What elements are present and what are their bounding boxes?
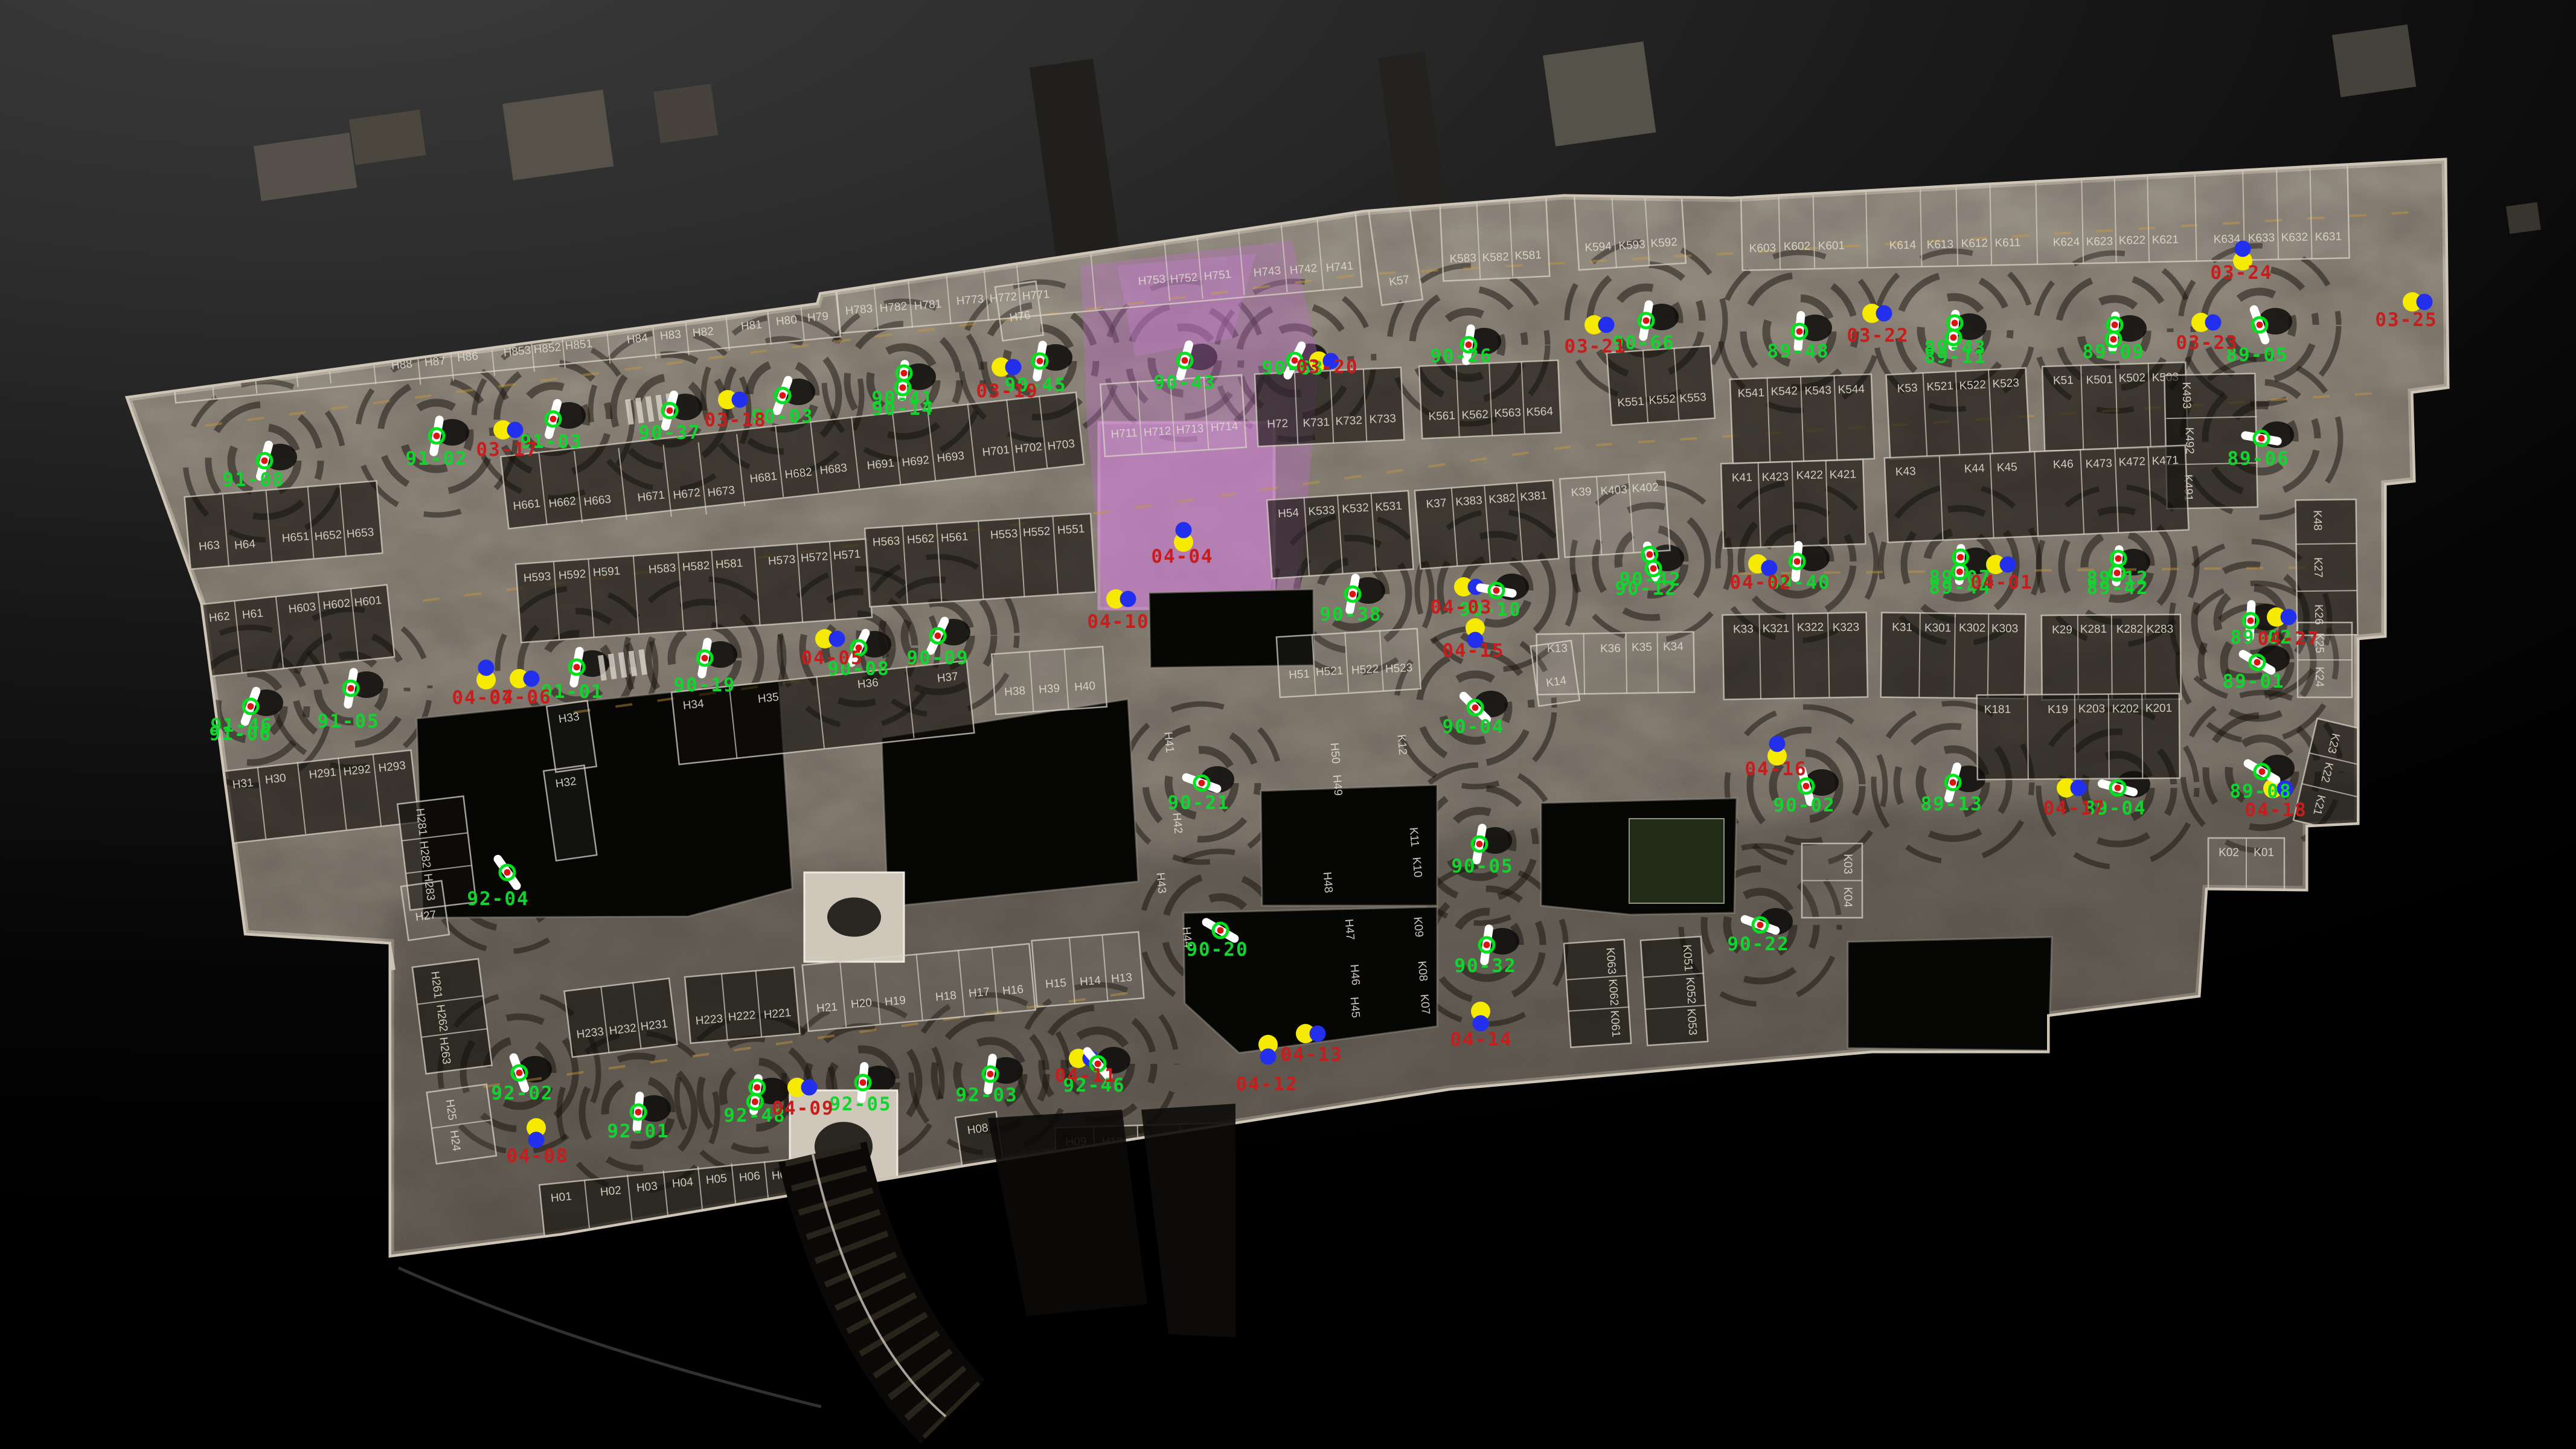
stall-number-label: K631 xyxy=(2315,231,2342,244)
stall-number-label: K051 xyxy=(1680,944,1695,972)
stall-number-label: H04 xyxy=(671,1176,694,1190)
stall-number-label: K592 xyxy=(1650,236,1678,251)
station-label: 90-20 xyxy=(1186,939,1248,961)
station-label: 90-43 xyxy=(1153,372,1216,394)
stall-number-label: H551 xyxy=(1057,523,1085,537)
station-label: 89-09 xyxy=(2082,341,2144,363)
stall-number-label: K613 xyxy=(1926,238,1953,252)
point-cloud-debris xyxy=(254,133,357,201)
station-label: 90-12 xyxy=(1615,578,1677,600)
station-label: 89-48 xyxy=(1767,341,1829,362)
stall-number-label: K531 xyxy=(1375,500,1403,514)
sphere-target-marker[interactable] xyxy=(493,420,524,440)
point-cloud-debris xyxy=(653,84,718,144)
stall-number-label: H84 xyxy=(626,331,649,346)
stall-number-label: K553 xyxy=(1679,391,1707,406)
parking-stall-row: K43K44K45K46K473K472K471 xyxy=(1885,446,2189,543)
stall-number-label: K382 xyxy=(1488,491,1516,506)
parking-stall-row: H27 xyxy=(401,881,449,941)
target-label: 04-03 xyxy=(1430,597,1492,618)
stall-number-label: H34 xyxy=(682,697,705,712)
floor-plan-scene: H91H90H893H892H891H88H87H86H853H852H851H… xyxy=(0,0,2576,1449)
stall-number-label: K583 xyxy=(1449,252,1476,266)
target-label: 04-12 xyxy=(1235,1073,1298,1095)
stall-number-label: K41 xyxy=(1732,472,1752,485)
parking-stall-row: K29K281K282K283 xyxy=(2042,615,2181,700)
stall-number-label: H31 xyxy=(232,776,254,792)
parking-stall-row: H25H24 xyxy=(427,1084,496,1164)
parking-stall-row: H54K533K532K531 xyxy=(1267,491,1413,578)
crosswalk xyxy=(345,945,396,978)
stall-number-label: K282 xyxy=(2116,623,2144,636)
stall-number-label: H81 xyxy=(740,318,763,333)
stall-number-label: K37 xyxy=(1426,497,1447,511)
sphere-target-marker[interactable] xyxy=(476,660,496,690)
stall-number-label: K564 xyxy=(1526,405,1554,419)
sphere-target-marker[interactable] xyxy=(1471,1002,1490,1032)
stall-number-label: K612 xyxy=(1961,237,1988,251)
stall-number-label: K07 xyxy=(1418,994,1432,1016)
target-label: 04-17 xyxy=(2043,798,2105,819)
parking-stall-row: K181K19K203K202K201 xyxy=(1977,694,2180,780)
stall-number-label: K35 xyxy=(1632,641,1652,654)
void-area xyxy=(1848,937,2052,1051)
stall-number-label: K403 xyxy=(1600,484,1628,498)
station-label: 90-14 xyxy=(871,398,934,420)
target-label: 03-23 xyxy=(2176,332,2238,354)
target-label: 04-05 xyxy=(801,647,863,669)
point-cloud-debris xyxy=(349,110,426,165)
stall-number-label: K46 xyxy=(2052,458,2074,471)
stall-number-label: K29 xyxy=(2052,624,2072,636)
stall-number-label: K423 xyxy=(1761,470,1789,484)
parking-stall-row: K41K423K422K421 xyxy=(1721,459,1865,548)
stall-number-label: H711 xyxy=(1110,427,1138,441)
stall-number-label: K53 xyxy=(1897,382,1918,395)
stall-number-label: H02 xyxy=(600,1184,622,1198)
stall-number-label: H713 xyxy=(1176,423,1204,437)
station-label: 91-05 xyxy=(317,711,379,732)
stall-number-label: K062 xyxy=(1606,979,1621,1006)
stall-number-label: H593 xyxy=(523,570,551,584)
station-label: 90-21 xyxy=(1167,792,1229,814)
target-label: 04-09 xyxy=(772,1098,834,1119)
stall-number-label: K544 xyxy=(1837,383,1865,397)
parking-stall-row: K594K593K592 xyxy=(1573,173,1685,270)
stall-number-label: K203 xyxy=(2078,703,2106,715)
stall-number-label: H39 xyxy=(1039,682,1060,696)
point-cloud-debris xyxy=(2332,24,2416,97)
stall-number-label: H51 xyxy=(1289,668,1310,682)
station-label: 92-04 xyxy=(467,888,529,910)
stall-number-label: K551 xyxy=(1617,395,1645,410)
parking-stall-row: H33 xyxy=(546,701,597,772)
parking-stall-row: H261H262H263 xyxy=(412,959,492,1073)
station-label: 90-04 xyxy=(1442,716,1504,738)
stall-number-label: H573 xyxy=(767,553,796,568)
stall-number-label: H03 xyxy=(636,1180,658,1194)
stall-number-label: H223 xyxy=(695,1012,723,1028)
sphere-target-marker[interactable] xyxy=(1106,589,1136,609)
stall-number-label: H14 xyxy=(1079,974,1101,989)
stall-number-label: K45 xyxy=(1996,461,2017,474)
sphere-target-marker[interactable] xyxy=(2191,313,2222,332)
station-label: 90-37 xyxy=(638,422,700,444)
target-label: 03-19 xyxy=(976,380,1038,402)
target-label: 04-18 xyxy=(2244,799,2307,821)
sphere-target-marker[interactable] xyxy=(787,1078,818,1097)
stall-number-label: K731 xyxy=(1302,416,1330,430)
stall-number-label: K621 xyxy=(2151,234,2179,247)
stall-number-label: K11 xyxy=(1407,827,1421,847)
stall-number-label: K301 xyxy=(1924,622,1952,635)
parking-stall-row: K541K542K543K544 xyxy=(1730,374,1874,464)
stall-number-label: K533 xyxy=(1308,504,1336,519)
parking-stall-row: K561K562K563K564 xyxy=(1419,360,1561,439)
point-cloud-debris xyxy=(1030,59,1120,257)
stall-number-label: H743 xyxy=(1253,264,1281,280)
stall-number-label: H79 xyxy=(807,310,829,324)
target-label: 03-18 xyxy=(704,409,766,431)
stall-number-label: K24 xyxy=(2313,667,2325,687)
stall-number-label: H892 xyxy=(298,356,326,371)
point-cloud-viewport[interactable]: H91H90H893H892H891H88H87H86H853H852H851H… xyxy=(0,0,2576,1449)
stall-number-label: K281 xyxy=(2080,623,2107,636)
stall-number-label: K283 xyxy=(2147,623,2174,636)
sphere-target-marker[interactable] xyxy=(1258,1035,1278,1065)
station-label: 90-09 xyxy=(906,647,969,669)
stall-number-label: K523 xyxy=(1992,377,2019,391)
stall-number-label: K473 xyxy=(2085,457,2112,471)
stall-number-label: K04 xyxy=(1841,887,1854,907)
stall-number-label: H30 xyxy=(264,772,287,787)
stall-number-label: K561 xyxy=(1428,409,1455,423)
stall-number-label: K581 xyxy=(1514,249,1542,263)
stall-number-label: K383 xyxy=(1455,494,1483,508)
parking-stall-row: K39K403K402 xyxy=(1560,472,1670,557)
point-cloud-debris xyxy=(1543,42,1656,147)
stall-number-label: K063 xyxy=(1604,947,1618,975)
target-label: 03-17 xyxy=(476,439,538,461)
stall-number-label: H17 xyxy=(968,985,990,1000)
stall-number-label: K181 xyxy=(1984,703,2011,716)
station-label: 89-42 xyxy=(2086,577,2148,599)
stall-number-label: K27 xyxy=(2312,557,2324,578)
stall-number-label: H852 xyxy=(533,341,562,356)
station-label: 90-05 xyxy=(1451,856,1513,877)
stairwell-bright-room xyxy=(804,872,904,962)
stall-number-label: K532 xyxy=(1342,502,1370,516)
target-label: 03-20 xyxy=(1296,356,1358,378)
stall-number-label: K502 xyxy=(2118,371,2145,385)
stall-number-label: H63 xyxy=(198,539,220,554)
stall-number-label: K302 xyxy=(1959,622,1986,635)
stall-number-label: K12 xyxy=(1395,734,1409,756)
sphere-target-marker[interactable] xyxy=(718,390,748,409)
stall-number-label: K061 xyxy=(1608,1010,1623,1038)
stall-number-label: H21 xyxy=(816,1000,838,1015)
stall-number-label: K633 xyxy=(2248,232,2275,245)
station-label: 92-01 xyxy=(607,1121,669,1142)
station-label: 90-38 xyxy=(1319,604,1382,625)
stall-number-label: K19 xyxy=(2048,703,2068,716)
stall-number-label: K471 xyxy=(2151,454,2179,468)
sphere-target-marker[interactable] xyxy=(1296,1024,1326,1043)
stall-number-label: K521 xyxy=(1926,380,1953,394)
stall-number-label: K582 xyxy=(1482,251,1509,264)
parking-stall-row: H51H521H522H523 xyxy=(1277,629,1421,697)
stall-number-label: H714 xyxy=(1210,420,1238,435)
target-label: 04-14 xyxy=(1450,1029,1512,1051)
stall-number-label: K43 xyxy=(1895,465,1916,478)
stall-number-label: K052 xyxy=(1684,977,1698,1005)
stall-number-label: K501 xyxy=(2086,373,2113,386)
stall-number-label: H61 xyxy=(242,607,264,622)
stall-number-label: H43 xyxy=(1153,872,1168,894)
parking-stall-row: K13K36K35K34 xyxy=(1537,632,1695,694)
stall-number-label: K562 xyxy=(1461,408,1488,422)
stall-number-label: K323 xyxy=(1833,621,1860,635)
stall-number-label: K622 xyxy=(2118,234,2145,248)
parking-stall-row: H15H14H13 xyxy=(1032,932,1144,1006)
parking-stall-row: K03K04 xyxy=(1802,843,1862,918)
parking-stall-row: H563H562H561H553H552H551 xyxy=(865,514,1095,607)
stall-number-label: K602 xyxy=(1783,240,1810,254)
stall-number-label: K552 xyxy=(1648,393,1676,408)
stall-number-label: H592 xyxy=(558,568,586,582)
station-label: 91-06 xyxy=(209,723,271,745)
stall-number-label: K01 xyxy=(2254,846,2274,859)
stall-number-label: H18 xyxy=(935,989,957,1003)
stall-number-label: K563 xyxy=(1494,406,1521,420)
parking-stall-row: H76 xyxy=(995,281,1043,341)
stall-number-label: K322 xyxy=(1797,621,1824,635)
parking-stall-row: K53K521K522K523 xyxy=(1886,368,2030,459)
stall-number-label: H38 xyxy=(1004,685,1026,699)
stall-number-label: H571 xyxy=(833,548,861,562)
target-label: 04-13 xyxy=(1280,1044,1342,1066)
stall-number-label: K13 xyxy=(1547,642,1568,656)
stall-number-label: H751 xyxy=(1203,268,1232,283)
stall-number-label: H523 xyxy=(1385,662,1413,676)
stall-number-label: H221 xyxy=(763,1006,792,1022)
target-label: 03-25 xyxy=(2375,309,2437,331)
stall-number-label: H83 xyxy=(659,328,682,342)
station-label: 89-06 xyxy=(2227,448,2289,470)
stall-number-label: K601 xyxy=(1818,240,1845,253)
station-label: 91-02 xyxy=(405,448,467,470)
target-label: 03-22 xyxy=(1847,325,1909,347)
stall-number-label: H35 xyxy=(757,691,780,706)
stall-number-label: H46 xyxy=(1348,964,1362,985)
stall-number-label: K603 xyxy=(1749,242,1776,255)
stall-number-label: K381 xyxy=(1520,489,1548,504)
stall-number-label: H553 xyxy=(990,528,1018,542)
stall-number-label: H562 xyxy=(906,533,935,547)
parking-stall-row: H63H64H651H652H653 xyxy=(185,481,383,569)
stall-number-label: K594 xyxy=(1584,240,1612,255)
target-label: 04-10 xyxy=(1087,611,1149,633)
stall-number-label: K623 xyxy=(2086,235,2113,249)
sphere-target-marker[interactable] xyxy=(1862,304,1892,323)
stall-number-label: H72 xyxy=(1267,417,1289,431)
station-label: 92-03 xyxy=(955,1084,1017,1106)
station-label: 92-02 xyxy=(491,1083,553,1104)
sphere-target-marker[interactable] xyxy=(815,629,845,648)
stall-number-label: K541 xyxy=(1737,386,1764,400)
stall-number-label: K593 xyxy=(1618,238,1646,253)
stall-number-label: K09 xyxy=(1411,916,1426,938)
stall-number-label: H37 xyxy=(937,670,959,685)
stall-number-label: H591 xyxy=(592,565,621,579)
station-label: 92-05 xyxy=(829,1093,891,1115)
stall-number-label: H781 xyxy=(914,298,942,313)
stall-number-label: H50 xyxy=(1328,742,1342,764)
stall-number-label: H752 xyxy=(1170,271,1198,286)
stall-number-label: K321 xyxy=(1763,622,1790,636)
parking-stall-row: H72K731K732K733 xyxy=(1255,368,1404,447)
green-room-patch xyxy=(1629,819,1724,903)
target-label: 04-02 xyxy=(1729,572,1792,593)
stall-number-label: H572 xyxy=(800,550,828,565)
target-label: 04-08 xyxy=(506,1145,568,1167)
stall-number-label: H653 xyxy=(346,526,374,541)
station-label: 90-22 xyxy=(1727,933,1789,955)
station-label: 90-02 xyxy=(1773,795,1835,816)
target-label: 04-27 xyxy=(2257,628,2319,650)
stall-number-label: H80 xyxy=(775,313,798,328)
stall-number-label: H41 xyxy=(1161,731,1176,753)
stall-number-label: H20 xyxy=(850,996,873,1011)
parking-stall-row: K551K552K553 xyxy=(1607,346,1715,425)
stall-number-label: K31 xyxy=(1892,621,1912,634)
stall-number-label: K614 xyxy=(1889,239,1916,252)
stall-number-label: H48 xyxy=(1321,871,1335,893)
stall-number-label: H753 xyxy=(1138,273,1166,288)
sphere-target-marker[interactable] xyxy=(2267,607,2297,627)
stall-number-label: K202 xyxy=(2112,703,2139,715)
stall-number-label: K053 xyxy=(1685,1008,1699,1036)
stall-number-label: H563 xyxy=(872,535,900,549)
stall-number-label: K542 xyxy=(1770,385,1798,398)
stall-number-label: K03 xyxy=(1841,854,1854,874)
parking-stall-row: K31K301K302K303 xyxy=(1881,613,2026,699)
stall-number-label: H40 xyxy=(1074,680,1096,694)
stall-number-label: H05 xyxy=(705,1172,728,1186)
parking-stall-row: H223H222H221 xyxy=(685,967,799,1043)
target-label: 04-11 xyxy=(1054,1065,1117,1087)
stall-number-label: H45 xyxy=(1348,996,1362,1018)
stall-number-label: K08 xyxy=(1415,961,1430,982)
stall-number-label: H82 xyxy=(692,325,714,339)
station-label: 89-01 xyxy=(2222,671,2284,693)
stall-number-label: H741 xyxy=(1325,260,1354,275)
sphere-target-marker[interactable] xyxy=(1584,315,1615,334)
target-label: 03-21 xyxy=(1564,336,1626,357)
station-label: 90-19 xyxy=(673,674,735,696)
stall-number-label: H01 xyxy=(550,1190,572,1204)
sphere-target-marker[interactable] xyxy=(2057,778,2087,798)
stall-number-label: H15 xyxy=(1045,977,1066,991)
point-cloud-debris xyxy=(2506,202,2541,234)
target-label: 04-07 xyxy=(452,687,514,709)
stall-number-label: H782 xyxy=(879,300,908,315)
stall-number-label: H742 xyxy=(1289,262,1318,277)
stall-number-label: H712 xyxy=(1143,425,1171,440)
station-label: 89-13 xyxy=(1920,793,1982,815)
stall-number-label: H62 xyxy=(208,610,231,625)
parking-stall-row: H233H232H231 xyxy=(565,978,678,1057)
stall-number-label: K421 xyxy=(1829,468,1856,481)
stall-number-label: H13 xyxy=(1110,971,1132,986)
station-label: 90-26 xyxy=(1430,345,1492,367)
station-label: 90-32 xyxy=(1454,955,1516,977)
stall-number-label: K51 xyxy=(2053,374,2074,388)
parking-stall-row: K37K383K382K381 xyxy=(1415,481,1559,569)
target-label: 03-24 xyxy=(2210,262,2272,284)
stall-number-label: H42 xyxy=(1170,812,1184,834)
stall-number-label: H652 xyxy=(314,528,342,543)
parking-stall-row: H38H39H40 xyxy=(992,647,1107,714)
stall-number-label: K48 xyxy=(2311,510,2324,531)
stall-number-label: K733 xyxy=(1369,412,1396,426)
stall-number-label: H581 xyxy=(715,557,743,571)
stall-number-label: K33 xyxy=(1733,623,1754,636)
stall-number-label: K402 xyxy=(1632,481,1659,496)
stall-number-label: H47 xyxy=(1342,918,1357,940)
stall-number-label: H64 xyxy=(234,538,256,552)
stall-number-label: H522 xyxy=(1351,663,1379,677)
stall-number-label: H851 xyxy=(565,337,593,353)
stall-number-label: H552 xyxy=(1022,525,1051,540)
sphere-target-marker[interactable] xyxy=(527,1118,546,1148)
stall-number-label: H222 xyxy=(728,1009,756,1024)
target-label: 04-16 xyxy=(1745,758,1807,780)
parking-stall-row: K051K052K053 xyxy=(1641,936,1708,1045)
stall-number-label: K201 xyxy=(2145,702,2173,715)
stall-number-label: K44 xyxy=(1964,462,1985,475)
point-cloud-debris xyxy=(502,90,614,181)
point-cloud-debris xyxy=(1378,51,1447,214)
stall-number-label: H773 xyxy=(956,293,984,308)
stall-number-label: K632 xyxy=(2281,231,2308,245)
stall-number-label: H521 xyxy=(1315,665,1344,679)
stall-number-label: K732 xyxy=(1335,414,1362,428)
stall-number-label: K36 xyxy=(1600,642,1621,656)
stall-number-label: K34 xyxy=(1663,641,1684,654)
target-label: 04-01 xyxy=(1970,572,2033,593)
target-label: 04-15 xyxy=(1442,640,1504,662)
parking-stall-row: K603K602K601K614K613K612K611K624K623K622… xyxy=(1740,158,2349,270)
stall-number-label: H91 xyxy=(183,372,205,386)
station-label: 89-11 xyxy=(1924,346,1986,368)
stall-number-label: H06 xyxy=(739,1169,761,1184)
sphere-target-marker[interactable] xyxy=(510,669,540,688)
station-label: 91-08 xyxy=(222,469,284,491)
stall-number-label: K522 xyxy=(1959,379,1986,392)
parking-stall-row: K48K27K26 xyxy=(2296,499,2358,635)
stall-number-label: H651 xyxy=(281,530,310,545)
stall-number-label: K624 xyxy=(2052,236,2080,249)
stall-number-label: K543 xyxy=(1804,384,1831,398)
stall-number-label: H16 xyxy=(1002,983,1024,997)
stall-number-label: H49 xyxy=(1330,774,1345,796)
stall-number-label: H54 xyxy=(1278,507,1300,520)
stall-number-label: K10 xyxy=(1410,857,1424,878)
stall-number-label: H583 xyxy=(648,561,676,576)
stall-number-label: H893 xyxy=(266,360,294,376)
stall-number-label: H19 xyxy=(884,994,906,1008)
